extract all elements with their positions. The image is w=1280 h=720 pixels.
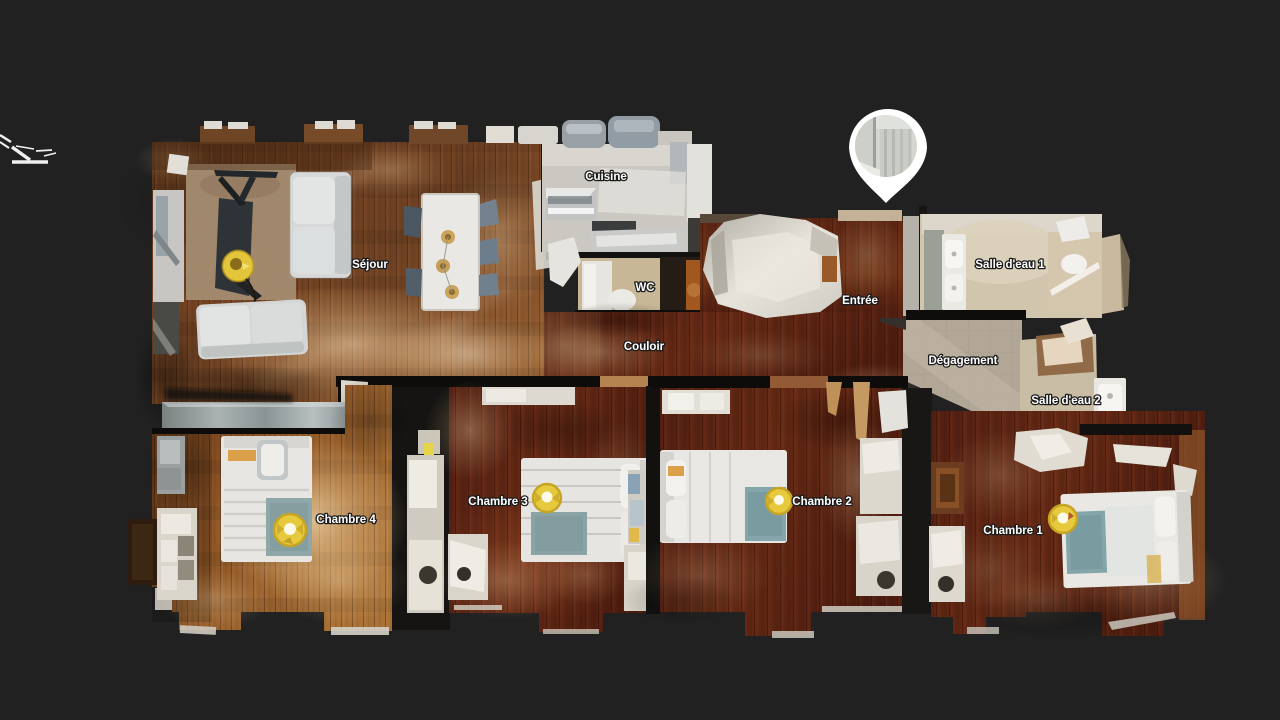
svg-text:Chambre 3: Chambre 3: [468, 496, 527, 508]
svg-text:Salle d'eau 2: Salle d'eau 2: [1031, 395, 1100, 407]
svg-text:Entrée: Entrée: [842, 295, 878, 307]
svg-text:Chambre 4: Chambre 4: [316, 514, 376, 526]
svg-text:Chambre 2: Chambre 2: [792, 496, 851, 508]
svg-text:Chambre 1: Chambre 1: [983, 525, 1043, 537]
svg-text:Séjour: Séjour: [352, 259, 388, 271]
svg-text:Salle d'eau 1: Salle d'eau 1: [975, 259, 1045, 271]
svg-text:Dégagement: Dégagement: [928, 355, 997, 367]
svg-text:Couloir: Couloir: [624, 341, 665, 353]
svg-text:Cuisine: Cuisine: [585, 171, 627, 183]
svg-text:WC: WC: [635, 282, 654, 294]
